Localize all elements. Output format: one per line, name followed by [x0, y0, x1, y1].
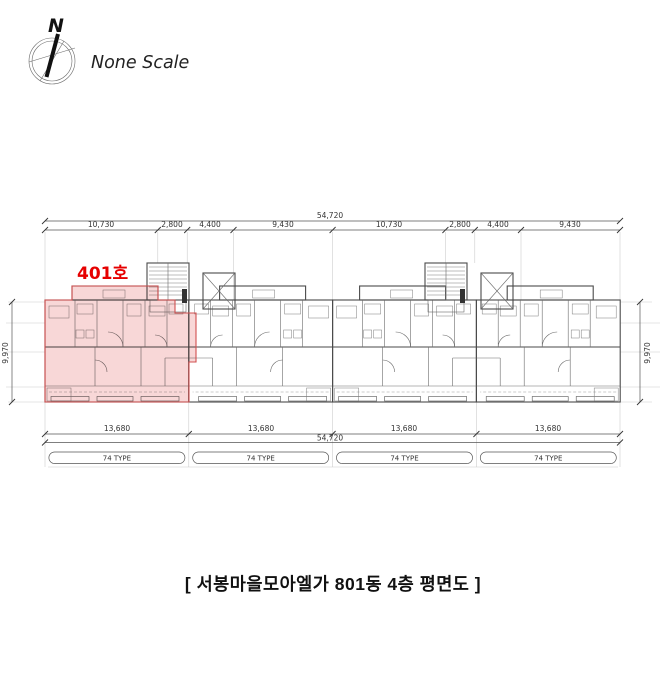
dim-bottom-seg: 13,680 [104, 424, 130, 433]
type-label: 74 TYPE [247, 455, 275, 463]
unit-4-plan [476, 286, 620, 402]
scale-note: None Scale [91, 53, 189, 73]
dim-bottom-seg: 13,680 [391, 424, 417, 433]
compass-north-label: N [48, 15, 64, 37]
dim-top-total: 54,720 [317, 211, 343, 220]
dim-bottom-total: 54,720 [317, 434, 343, 443]
dim-top-seg: 9,430 [272, 220, 294, 229]
dim-bottom-seg: 13,680 [535, 424, 561, 433]
dim-top-seg: 2,800 [449, 220, 471, 229]
dim-top-seg: 2,800 [161, 220, 183, 229]
dim-left-height: 9,970 [1, 342, 10, 364]
compass-needle-icon [47, 34, 59, 77]
type-label: 74 TYPE [103, 455, 131, 463]
floorplan-page: N None Scale [0, 0, 666, 700]
unit-3-plan [333, 286, 477, 402]
north-compass-icon: N [29, 15, 75, 84]
unit-2-plan [189, 286, 333, 402]
dim-top-seg: 10,730 [376, 220, 402, 229]
top-dimensions: 54,720 10,730 2,800 4,400 9,430 10,730 2… [42, 211, 623, 233]
stair-core-2 [425, 263, 513, 312]
dim-top-seg: 10,730 [88, 220, 114, 229]
unit-401-callout: 401호 [77, 264, 128, 284]
drawing-caption: [ 서봉마을모아엘가 801동 4층 평면도 ] [0, 571, 666, 596]
dim-right-height: 9,970 [643, 342, 652, 364]
type-label: 74 TYPE [534, 455, 562, 463]
type-label: 74 TYPE [390, 455, 418, 463]
dim-bottom-seg: 13,680 [248, 424, 274, 433]
dim-top-seg: 4,400 [199, 220, 221, 229]
dim-top-seg: 9,430 [559, 220, 581, 229]
dim-top-seg: 4,400 [487, 220, 509, 229]
unit-401-highlight [45, 286, 196, 402]
